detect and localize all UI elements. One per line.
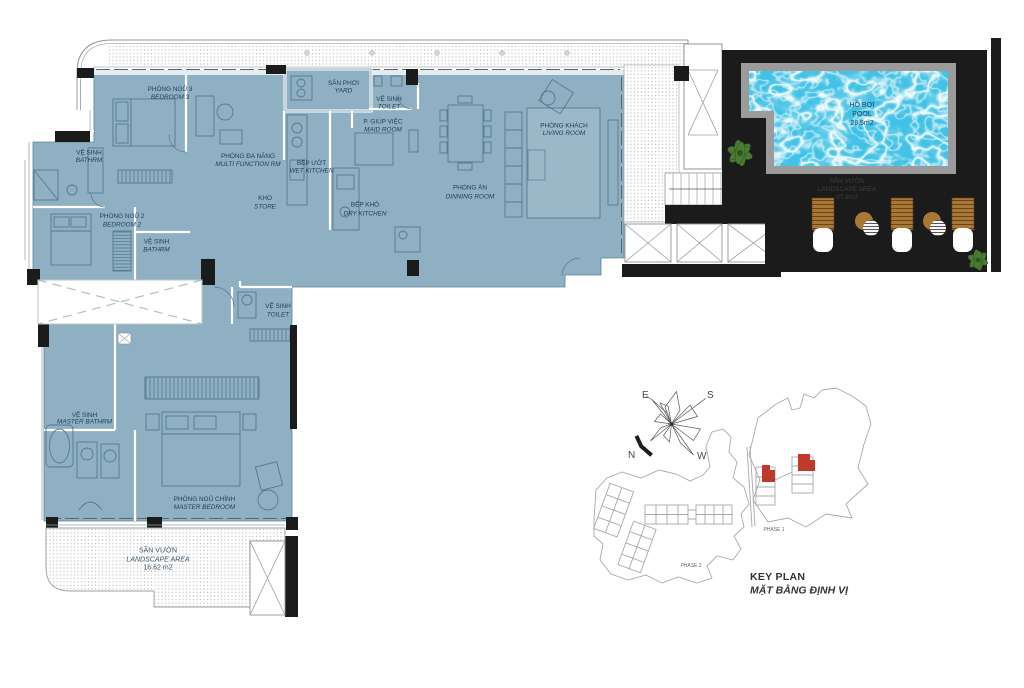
svg-text:PHÒNG NGỦ 3: PHÒNG NGỦ 3	[148, 84, 193, 93]
svg-text:BATHRM: BATHRM	[143, 247, 170, 254]
svg-text:VỆ SINH: VỆ SINH	[265, 301, 291, 310]
svg-text:POOL: POOL	[852, 111, 872, 118]
svg-text:SÂN VƯỜN: SÂN VƯỜN	[829, 176, 865, 185]
svg-text:PHÒNG ĐA NĂNG: PHÒNG ĐA NĂNG	[221, 151, 275, 160]
svg-text:BEDROOM 3: BEDROOM 3	[151, 94, 190, 101]
svg-text:VỆ SINH: VỆ SINH	[76, 148, 102, 157]
svg-text:MASTER BATHRM: MASTER BATHRM	[57, 419, 113, 426]
svg-text:N: N	[628, 450, 635, 461]
svg-text:YARD: YARD	[335, 88, 353, 95]
svg-text:SÂN PHƠI: SÂN PHƠI	[328, 78, 359, 87]
svg-text:PHÒNG NGỦ 2: PHÒNG NGỦ 2	[100, 211, 145, 220]
svg-text:VỆ SINH: VỆ SINH	[376, 94, 402, 103]
svg-text:SÂN VƯỜN: SÂN VƯỜN	[139, 546, 177, 555]
svg-text:LIVING ROOM: LIVING ROOM	[543, 130, 586, 137]
svg-text:28.5m2: 28.5m2	[850, 120, 873, 127]
svg-text:VỆ SINH: VỆ SINH	[144, 237, 170, 246]
svg-text:16.62 m2: 16.62 m2	[143, 565, 172, 572]
svg-text:MAID ROOM: MAID ROOM	[364, 127, 402, 134]
svg-text:PHÒNG NGỦ CHÍNH: PHÒNG NGỦ CHÍNH	[174, 494, 236, 503]
svg-text:WET KITCHEN: WET KITCHEN	[289, 168, 333, 175]
svg-text:BATHRM: BATHRM	[76, 157, 103, 164]
svg-text:PHASE 1: PHASE 1	[763, 527, 784, 533]
svg-text:W: W	[697, 451, 707, 462]
svg-text:PHASE 2: PHASE 2	[680, 563, 701, 569]
svg-text:E: E	[642, 390, 649, 401]
svg-text:S: S	[707, 390, 714, 401]
svg-text:TOILET: TOILET	[267, 312, 290, 319]
svg-text:LANDSCAPE AREA: LANDSCAPE AREA	[818, 186, 877, 193]
svg-text:KHO: KHO	[258, 195, 272, 202]
svg-text:KEY PLAN: KEY PLAN	[750, 571, 805, 583]
svg-text:PHÒNG ĂN: PHÒNG ĂN	[453, 183, 487, 192]
svg-text:STORE: STORE	[254, 204, 277, 211]
svg-text:DRY KITCHEN: DRY KITCHEN	[344, 211, 387, 218]
svg-text:PHÒNG KHÁCH: PHÒNG KHÁCH	[540, 121, 588, 130]
svg-text:LANDSCAPE AREA: LANDSCAPE AREA	[126, 557, 189, 564]
svg-text:P. GIÚP VIỆC: P. GIÚP VIỆC	[363, 117, 403, 126]
svg-text:DINNING ROOM: DINNING ROOM	[446, 194, 495, 201]
svg-text:TOILET: TOILET	[378, 104, 401, 111]
svg-text:MẶT BẰNG ĐỊNH VỊ: MẶT BẰNG ĐỊNH VỊ	[750, 584, 849, 597]
svg-text:MASTER BEDROOM: MASTER BEDROOM	[174, 504, 236, 511]
svg-text:MULTI FUNCTION RM: MULTI FUNCTION RM	[215, 161, 281, 168]
svg-text:BEDROOM 2: BEDROOM 2	[103, 222, 142, 229]
svg-text:97.8m2: 97.8m2	[836, 194, 858, 201]
